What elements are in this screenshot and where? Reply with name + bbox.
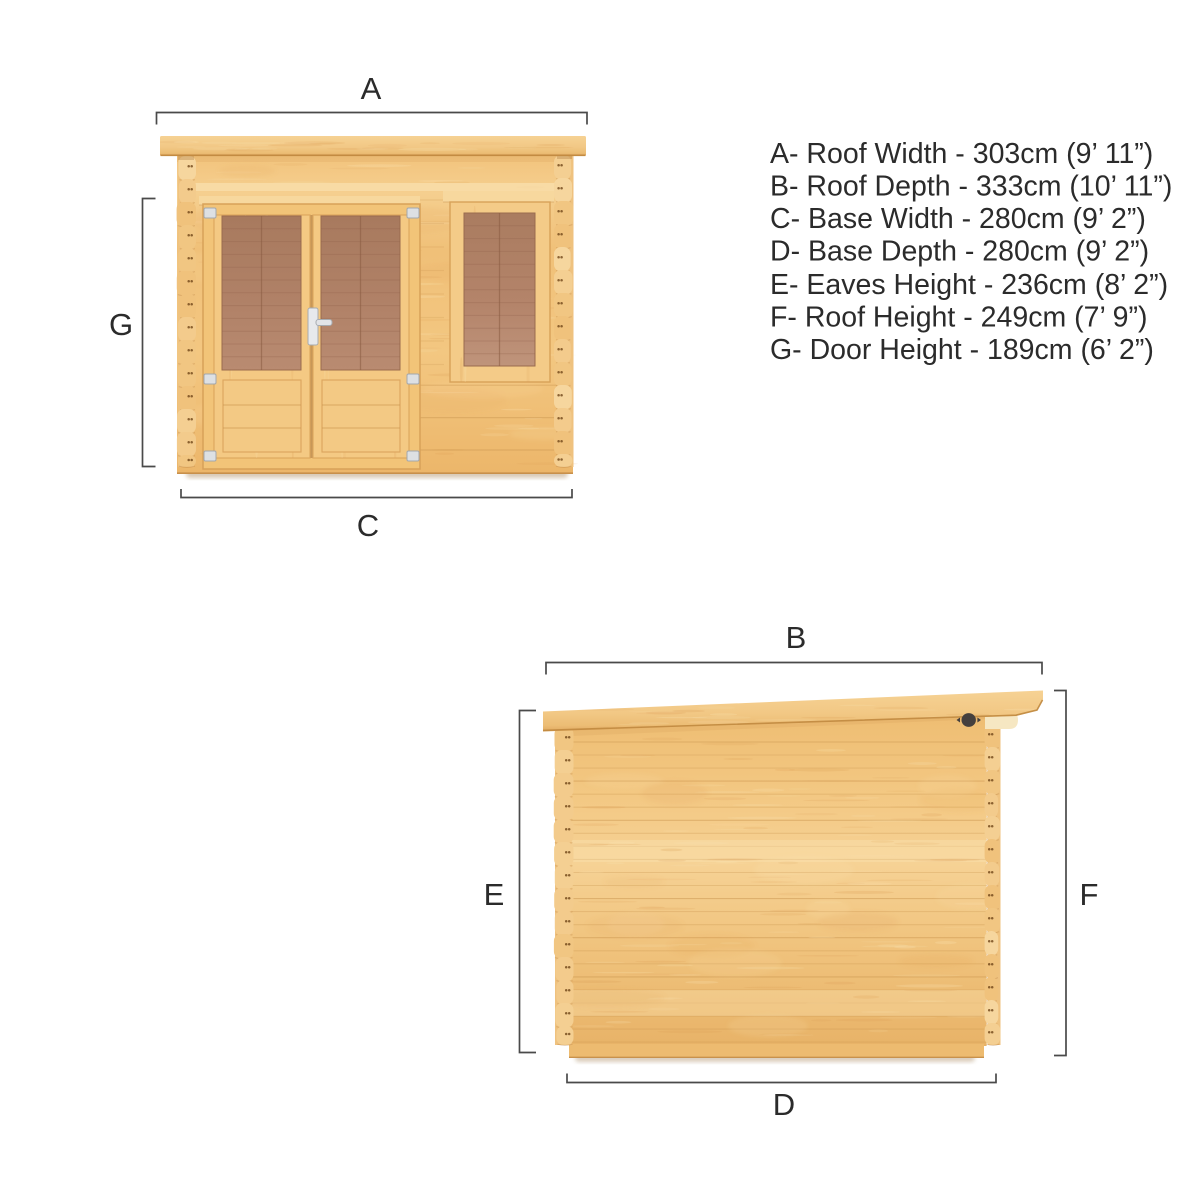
svg-text:D: D: [773, 1087, 795, 1122]
svg-text:F- Roof Height - 249cm (7’ 9”): F- Roof Height - 249cm (7’ 9”): [770, 302, 1147, 334]
svg-text:B- Roof Depth - 333cm (10’ 11”: B- Roof Depth - 333cm (10’ 11”): [770, 171, 1172, 203]
svg-text:G- Door Height - 189cm (6’ 2”): G- Door Height - 189cm (6’ 2”): [770, 334, 1154, 366]
svg-text:B: B: [786, 620, 807, 655]
svg-text:A: A: [361, 71, 382, 106]
svg-text:G: G: [109, 307, 133, 342]
svg-text:C: C: [357, 508, 379, 543]
svg-text:A- Roof Width - 303cm (9’ 11”): A- Roof Width - 303cm (9’ 11”): [770, 138, 1153, 170]
svg-text:E- Eaves Height - 236cm (8’ 2”: E- Eaves Height - 236cm (8’ 2”): [770, 269, 1168, 301]
svg-text:E: E: [484, 877, 505, 912]
svg-text:F: F: [1080, 877, 1099, 912]
svg-text:D- Base Depth - 280cm (9’ 2”): D- Base Depth - 280cm (9’ 2”): [770, 236, 1149, 268]
svg-text:C- Base Width - 280cm (9’ 2”): C- Base Width - 280cm (9’ 2”): [770, 203, 1146, 235]
